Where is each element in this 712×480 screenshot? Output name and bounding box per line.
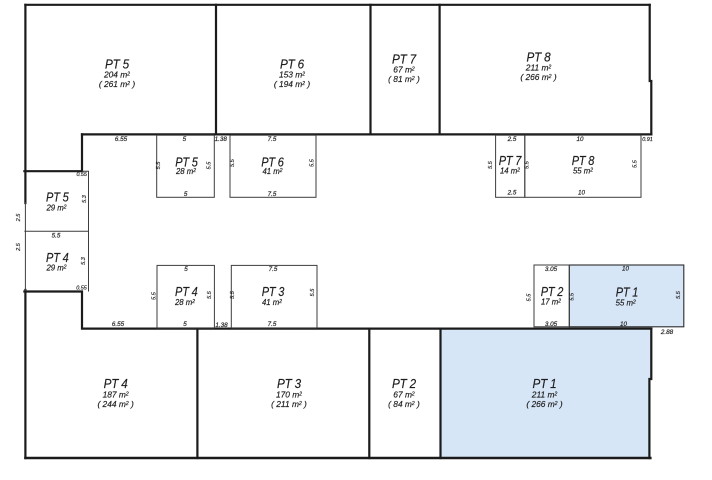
svg-text:204 m2: 204 m2 xyxy=(103,70,130,80)
svg-text:2.5: 2.5 xyxy=(507,190,517,197)
svg-text:1.38: 1.38 xyxy=(215,136,228,143)
svg-text:1.38: 1.38 xyxy=(215,322,228,329)
svg-text:187 m2: 187 m2 xyxy=(103,390,129,400)
svg-text:0.91: 0.91 xyxy=(642,137,653,143)
svg-text:14 m2: 14 m2 xyxy=(500,167,520,176)
svg-text:5.5: 5.5 xyxy=(230,158,236,167)
svg-text:10: 10 xyxy=(620,321,628,328)
svg-text:5.5: 5.5 xyxy=(207,290,213,299)
svg-text:5.5: 5.5 xyxy=(632,159,638,168)
svg-text:5.5: 5.5 xyxy=(676,290,682,299)
svg-text:170 m2: 170 m2 xyxy=(276,390,302,400)
svg-text:PT 5: PT 5 xyxy=(46,190,69,204)
svg-text:211 m2: 211 m2 xyxy=(525,63,552,73)
svg-text:( 81 m2 ): ( 81 m2 ) xyxy=(388,74,420,84)
svg-text:10: 10 xyxy=(578,190,586,197)
svg-text:2.5: 2.5 xyxy=(16,213,22,223)
svg-text:28 m2: 28 m2 xyxy=(175,167,196,176)
svg-text:5.5: 5.5 xyxy=(488,160,494,169)
svg-text:17 m2: 17 m2 xyxy=(541,297,561,306)
svg-text:( 211 m2 ): ( 211 m2 ) xyxy=(271,399,307,409)
svg-text:5: 5 xyxy=(184,266,188,273)
svg-text:29 m2: 29 m2 xyxy=(45,263,66,272)
svg-text:( 84 m2 ): ( 84 m2 ) xyxy=(388,399,420,409)
svg-text:7.5: 7.5 xyxy=(268,136,277,143)
svg-text:5.5: 5.5 xyxy=(524,160,530,169)
svg-text:7.5: 7.5 xyxy=(268,321,277,328)
svg-text:29 m2: 29 m2 xyxy=(45,203,66,212)
svg-text:( 244 m2 ): ( 244 m2 ) xyxy=(97,399,134,409)
svg-text:( 261 m2 ): ( 261 m2 ) xyxy=(99,79,136,89)
svg-text:41 m2: 41 m2 xyxy=(262,167,282,176)
svg-text:55 m2: 55 m2 xyxy=(573,167,593,176)
svg-text:10: 10 xyxy=(576,136,584,143)
svg-text:( 194 m2 ): ( 194 m2 ) xyxy=(274,79,311,89)
svg-text:10: 10 xyxy=(622,266,630,273)
svg-text:153 m2: 153 m2 xyxy=(279,70,305,80)
svg-text:55 m2: 55 m2 xyxy=(616,298,636,307)
svg-text:5.5: 5.5 xyxy=(156,161,162,170)
svg-text:6.55: 6.55 xyxy=(115,136,128,143)
svg-text:5.5: 5.5 xyxy=(570,292,576,301)
svg-text:67 m2: 67 m2 xyxy=(393,65,415,75)
svg-text:5: 5 xyxy=(183,321,187,328)
svg-text:7.5: 7.5 xyxy=(268,191,277,198)
svg-text:2.5: 2.5 xyxy=(507,136,517,143)
svg-text:28 m2: 28 m2 xyxy=(174,298,195,307)
svg-text:67 m2: 67 m2 xyxy=(393,390,415,400)
svg-text:3.05: 3.05 xyxy=(545,266,558,273)
svg-text:5.5: 5.5 xyxy=(230,290,236,299)
svg-text:6.55: 6.55 xyxy=(112,321,125,328)
svg-text:2.5: 2.5 xyxy=(16,242,22,252)
svg-text:( 266 m2 ): ( 266 m2 ) xyxy=(526,399,563,409)
svg-text:0.55: 0.55 xyxy=(76,172,87,178)
svg-text:5.5: 5.5 xyxy=(206,161,212,170)
svg-text:5: 5 xyxy=(184,191,188,198)
svg-text:5.5: 5.5 xyxy=(527,293,533,302)
svg-text:5.3: 5.3 xyxy=(82,194,88,203)
svg-text:7.5: 7.5 xyxy=(269,266,278,273)
svg-text:5.5: 5.5 xyxy=(310,158,316,167)
svg-text:3.05: 3.05 xyxy=(545,321,558,328)
svg-text:0.55: 0.55 xyxy=(76,286,87,292)
svg-text:( 266 m2 ): ( 266 m2 ) xyxy=(520,72,557,82)
svg-text:5.5: 5.5 xyxy=(152,291,158,300)
svg-text:41 m2: 41 m2 xyxy=(262,298,282,307)
svg-text:211 m2: 211 m2 xyxy=(531,390,558,400)
svg-text:5.5: 5.5 xyxy=(52,233,61,240)
svg-text:5.3: 5.3 xyxy=(81,256,87,265)
svg-text:5.5: 5.5 xyxy=(310,288,316,297)
svg-text:5: 5 xyxy=(183,136,187,143)
svg-text:2.88: 2.88 xyxy=(660,329,674,336)
